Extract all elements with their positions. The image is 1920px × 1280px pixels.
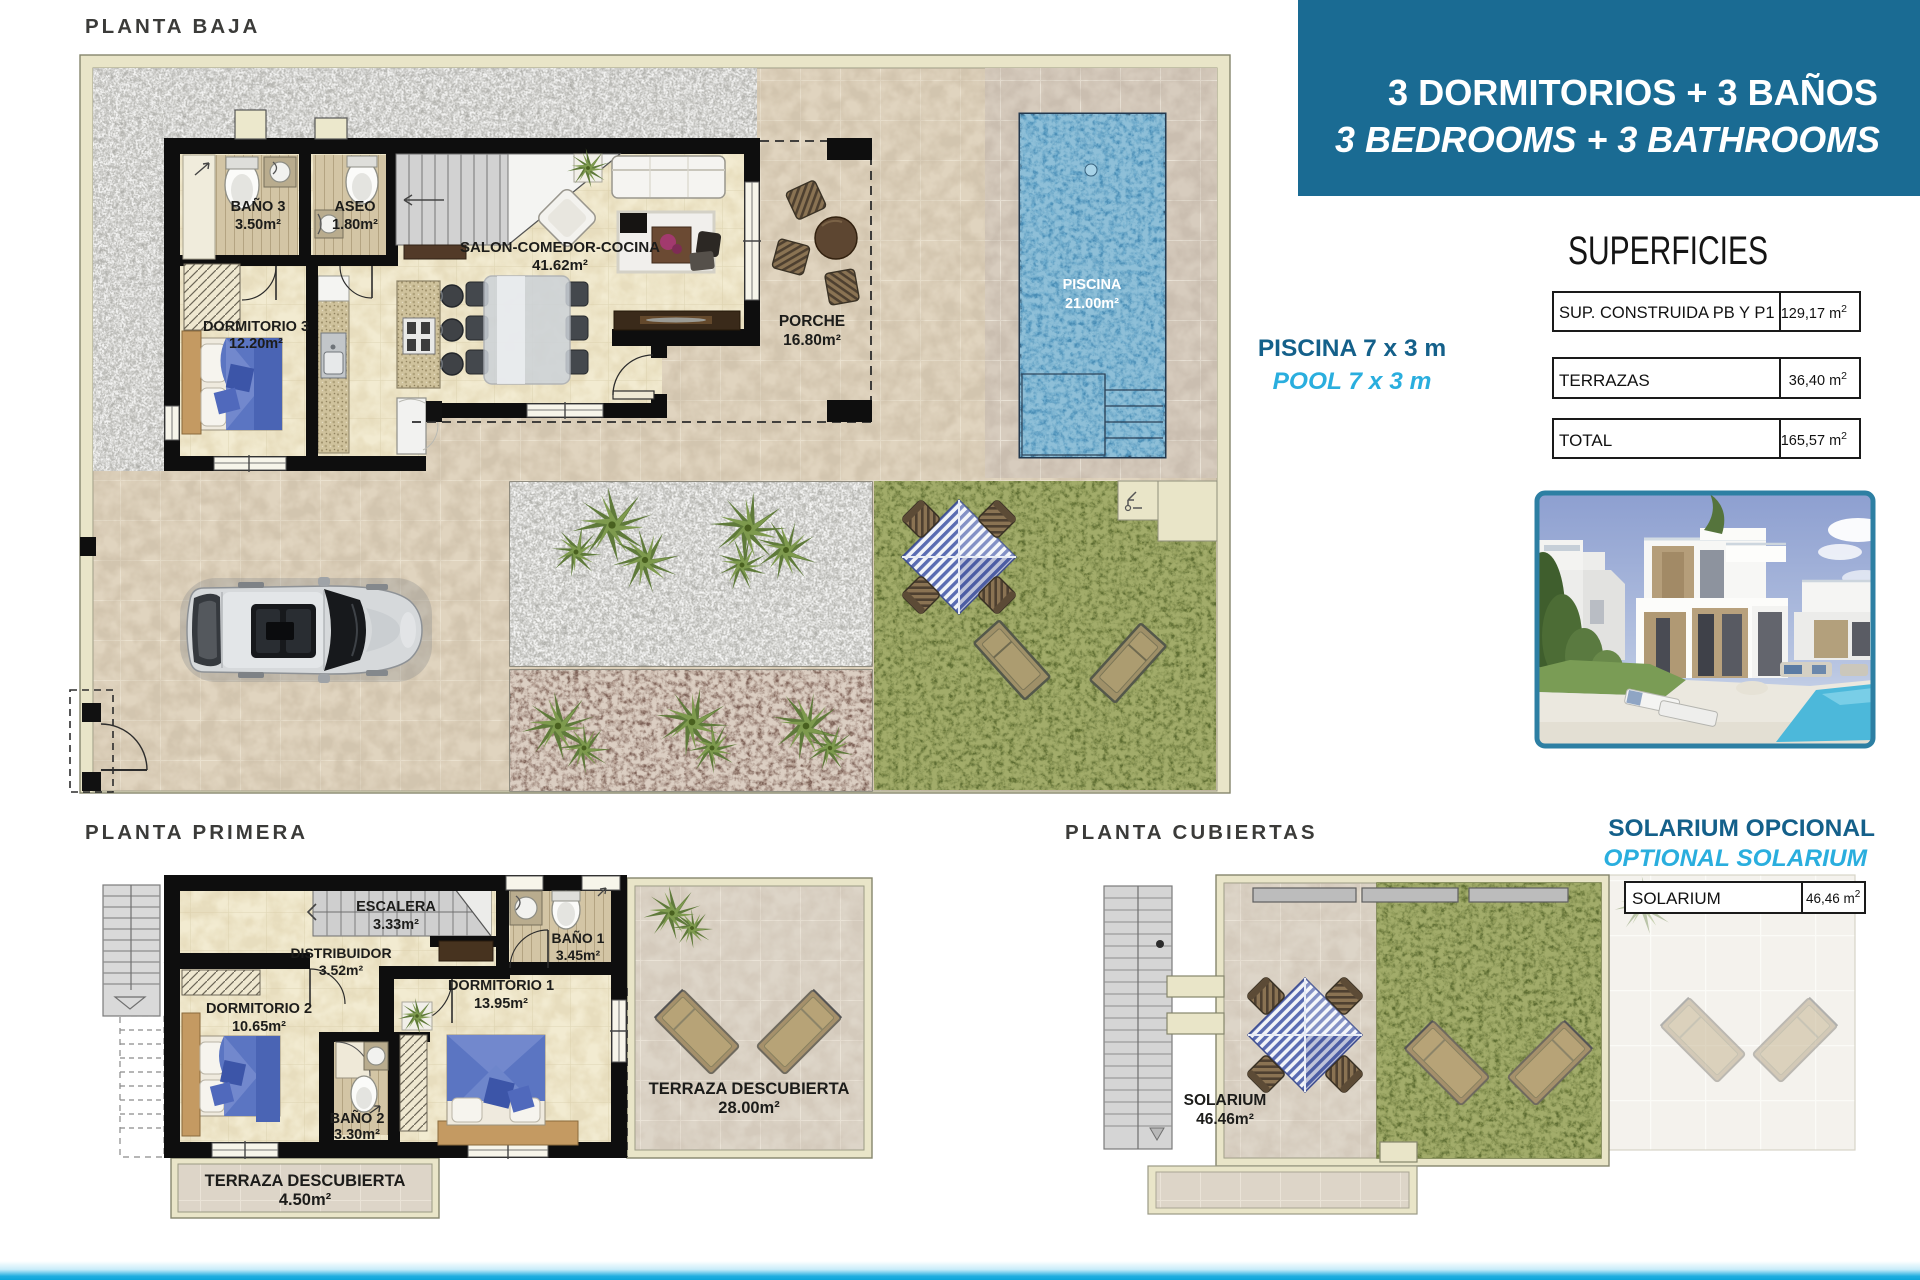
svg-text:3 BEDROOMS + 3 BATHROOMS: 3 BEDROOMS + 3 BATHROOMS	[1335, 119, 1880, 160]
svg-text:10.65m²: 10.65m²	[232, 1019, 286, 1035]
svg-text:4.50m²: 4.50m²	[279, 1191, 332, 1209]
svg-text:3.50m²: 3.50m²	[235, 217, 281, 233]
svg-text:46,46 m2: 46,46 m2	[1806, 889, 1861, 906]
svg-text:3.45m²: 3.45m²	[556, 947, 601, 963]
svg-text:21.00m²: 21.00m²	[1065, 296, 1119, 312]
svg-text:DORMITORIO 1: DORMITORIO 1	[448, 978, 554, 994]
svg-text:SOLARIUM: SOLARIUM	[1184, 1092, 1267, 1109]
svg-text:SALON-COMEDOR-COCINA: SALON-COMEDOR-COCINA	[460, 239, 660, 256]
svg-text:TERRAZA DESCUBIERTA: TERRAZA DESCUBIERTA	[205, 1172, 406, 1190]
svg-text:3.52m²: 3.52m²	[319, 962, 364, 978]
svg-text:3.30m²: 3.30m²	[334, 1127, 380, 1143]
svg-text:SUP. CONSTRUIDA PB Y P1: SUP. CONSTRUIDA PB Y P1	[1559, 304, 1775, 322]
svg-text:SUPERFICIES: SUPERFICIES	[1568, 229, 1768, 273]
svg-text:129,17 m2: 129,17 m2	[1781, 303, 1847, 322]
svg-text:3 DORMITORIOS + 3 BAÑOS: 3 DORMITORIOS + 3 BAÑOS	[1388, 71, 1878, 113]
svg-text:13.95m²: 13.95m²	[474, 996, 528, 1012]
svg-text:ASEO: ASEO	[334, 199, 375, 215]
svg-text:PISCINA: PISCINA	[1063, 277, 1122, 293]
svg-text:POOL 7 x 3 m: POOL 7 x 3 m	[1273, 368, 1432, 395]
svg-text:DISTRIBUIDOR: DISTRIBUIDOR	[290, 945, 391, 961]
svg-text:TERRAZAS: TERRAZAS	[1559, 371, 1650, 390]
svg-text:PLANTA PRIMERA: PLANTA PRIMERA	[85, 821, 308, 844]
svg-text:PLANTA CUBIERTAS: PLANTA CUBIERTAS	[1065, 821, 1318, 844]
svg-text:TERRAZA DESCUBIERTA: TERRAZA DESCUBIERTA	[649, 1080, 850, 1098]
svg-text:PISCINA 7 x 3 m: PISCINA 7 x 3 m	[1258, 335, 1446, 362]
svg-text:TOTAL: TOTAL	[1559, 431, 1612, 450]
svg-text:BAÑO 3: BAÑO 3	[231, 197, 286, 215]
svg-text:36,40 m2: 36,40 m2	[1789, 370, 1847, 389]
svg-text:46.46m²: 46.46m²	[1196, 1111, 1254, 1128]
svg-text:SOLARIUM OPCIONAL: SOLARIUM OPCIONAL	[1608, 815, 1875, 842]
svg-text:28.00m²: 28.00m²	[718, 1099, 780, 1117]
svg-text:SOLARIUM: SOLARIUM	[1632, 889, 1721, 908]
svg-text:16.80m²: 16.80m²	[783, 332, 841, 349]
svg-text:12.20m²: 12.20m²	[229, 336, 283, 352]
svg-text:41.62m²: 41.62m²	[532, 257, 588, 274]
svg-text:BAÑO 1: BAÑO 1	[552, 929, 605, 946]
svg-text:PLANTA BAJA: PLANTA BAJA	[85, 15, 260, 38]
svg-text:165,57 m2: 165,57 m2	[1781, 430, 1847, 449]
svg-text:BAÑO 2: BAÑO 2	[330, 1109, 385, 1127]
svg-text:3.33m²: 3.33m²	[373, 917, 419, 933]
svg-text:OPTIONAL SOLARIUM: OPTIONAL SOLARIUM	[1603, 845, 1867, 872]
svg-text:1.80m²: 1.80m²	[332, 217, 378, 233]
svg-text:ESCALERA: ESCALERA	[356, 899, 436, 915]
svg-text:PORCHE: PORCHE	[779, 313, 845, 330]
svg-text:DORMITORIO 2: DORMITORIO 2	[206, 1001, 312, 1017]
svg-text:DORMITORIO 3: DORMITORIO 3	[203, 319, 309, 335]
